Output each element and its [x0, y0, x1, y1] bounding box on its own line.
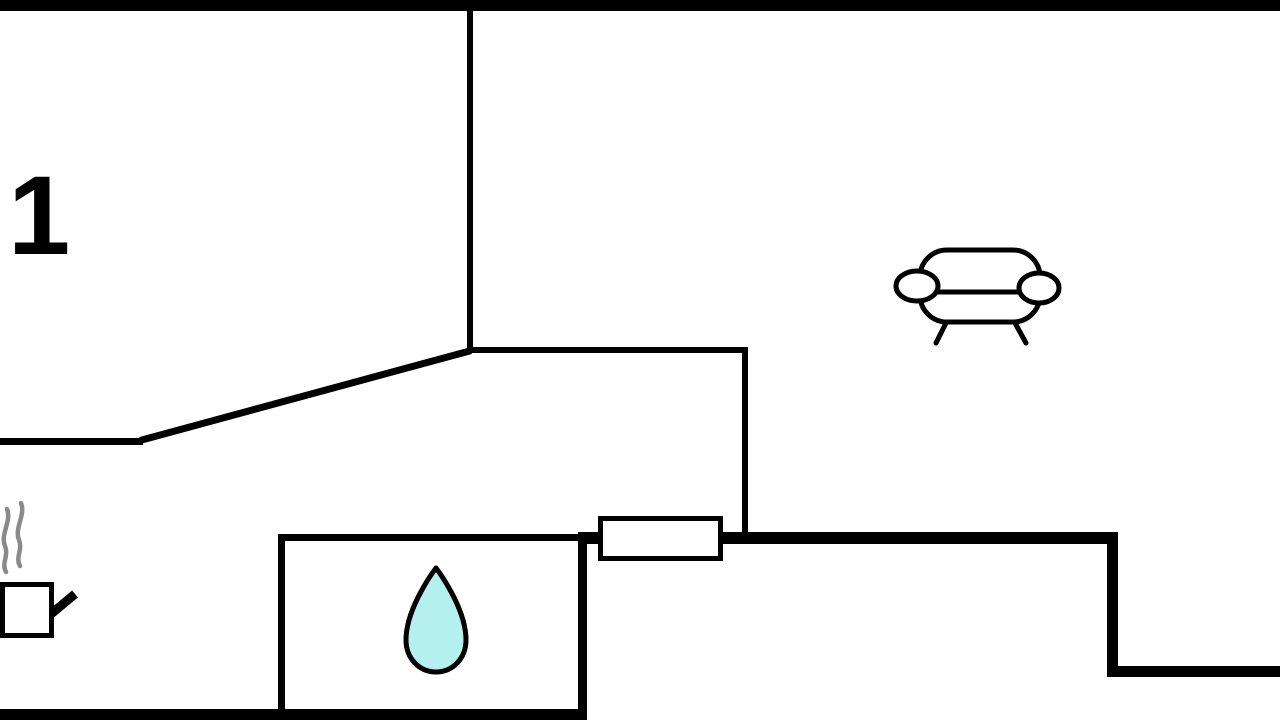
wall-diagonal [139, 347, 472, 444]
wall-step-horizontal [1107, 666, 1280, 677]
sofa-leg-right [1015, 323, 1026, 343]
wall-thick-vertical [1107, 532, 1118, 677]
wall-hall-right [742, 347, 748, 534]
sofa-armrest-left [896, 271, 938, 301]
room-label: 1 [8, 160, 70, 272]
wall-bottom-exterior [0, 709, 587, 720]
pot-handle [51, 594, 75, 614]
sofa-icon [880, 230, 1080, 360]
wall-left-horizontal [0, 438, 143, 445]
steam-line-right [18, 503, 22, 566]
window-opening [598, 516, 723, 561]
wall-hall-top [467, 347, 748, 353]
wall-bathroom-top [278, 534, 583, 541]
floor-plan: 1 [0, 0, 1280, 720]
wall-room1-right [467, 11, 473, 353]
wall-bathroom-right [578, 532, 587, 709]
steaming-pot-icon [0, 495, 90, 645]
sofa-armrest-right [1019, 273, 1059, 303]
steam-line-left [4, 509, 8, 572]
water-drop-shape [406, 568, 466, 672]
wall-top-exterior [0, 0, 1280, 11]
sofa-leg-left [936, 323, 946, 343]
water-drop-icon [395, 555, 480, 680]
wall-bathroom-left [278, 534, 285, 709]
pot-body [3, 585, 52, 636]
